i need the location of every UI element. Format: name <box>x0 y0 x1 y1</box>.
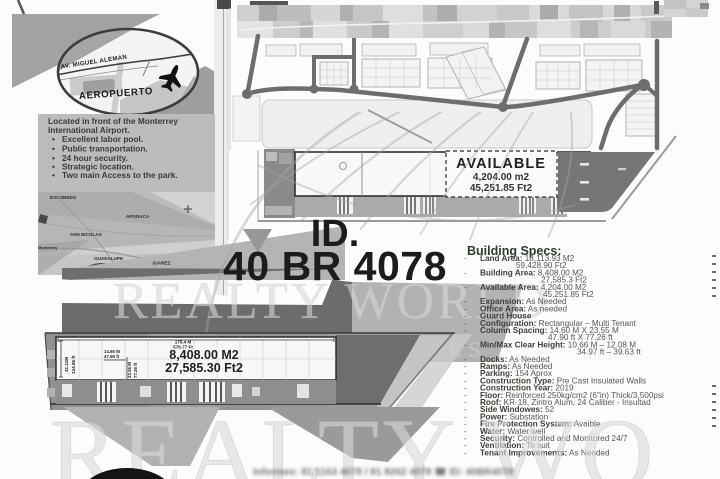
svg-text:77.26 ft: 77.26 ft <box>133 362 138 378</box>
svg-text:Two main Access to the park.: Two main Access to the park. <box>62 170 178 180</box>
svg-text:47.90 ft: 47.90 ft <box>104 354 120 359</box>
svg-text:•: • <box>52 134 55 144</box>
svg-text:34.97 ft – 39.63 ft: 34.97 ft – 39.63 ft <box>577 348 641 357</box>
svg-text:ESCOBEDO: ESCOBEDO <box>50 195 77 200</box>
svg-text:•: • <box>52 144 55 154</box>
svg-text:134.86 ft: 134.86 ft <box>71 355 76 374</box>
svg-text:Excellent labor pool.: Excellent labor pool. <box>62 134 143 144</box>
svg-text:-: - <box>464 283 467 292</box>
svg-text:-: - <box>464 340 467 349</box>
svg-text:JUAREZ: JUAREZ <box>152 261 171 266</box>
svg-text:45,251.85 Ft2: 45,251.85 Ft2 <box>470 183 533 194</box>
svg-text:8,408.00 M2: 8,408.00 M2 <box>169 348 239 362</box>
svg-text:27,585.30 Ft2: 27,585.30 Ft2 <box>165 361 243 375</box>
svg-text:4,204.00 m2: 4,204.00 m2 <box>473 172 530 183</box>
svg-text:SAN NICOLAS: SAN NICOLAS <box>70 232 102 237</box>
svg-text:40 BR 4078: 40 BR 4078 <box>223 243 447 289</box>
svg-text:GUADALUPE: GUADALUPE <box>94 256 123 261</box>
svg-text:•: • <box>52 170 55 180</box>
svg-text:-: - <box>464 268 467 277</box>
svg-text:23.55 M: 23.55 M <box>127 362 132 378</box>
svg-text:APODACA: APODACA <box>126 214 150 219</box>
svg-text:-: - <box>464 254 467 263</box>
svg-text:41.11M: 41.11M <box>64 357 69 372</box>
svg-text:-: - <box>464 326 467 335</box>
svg-text:Monterrey: Monterrey <box>38 245 58 250</box>
svg-text:Informes: 81 1163 4078 / 81 82: Informes: 81 1163 4078 / 81 8262 4078 ☎ … <box>253 467 514 478</box>
svg-text:Public transportation.: Public transportation. <box>62 144 148 154</box>
